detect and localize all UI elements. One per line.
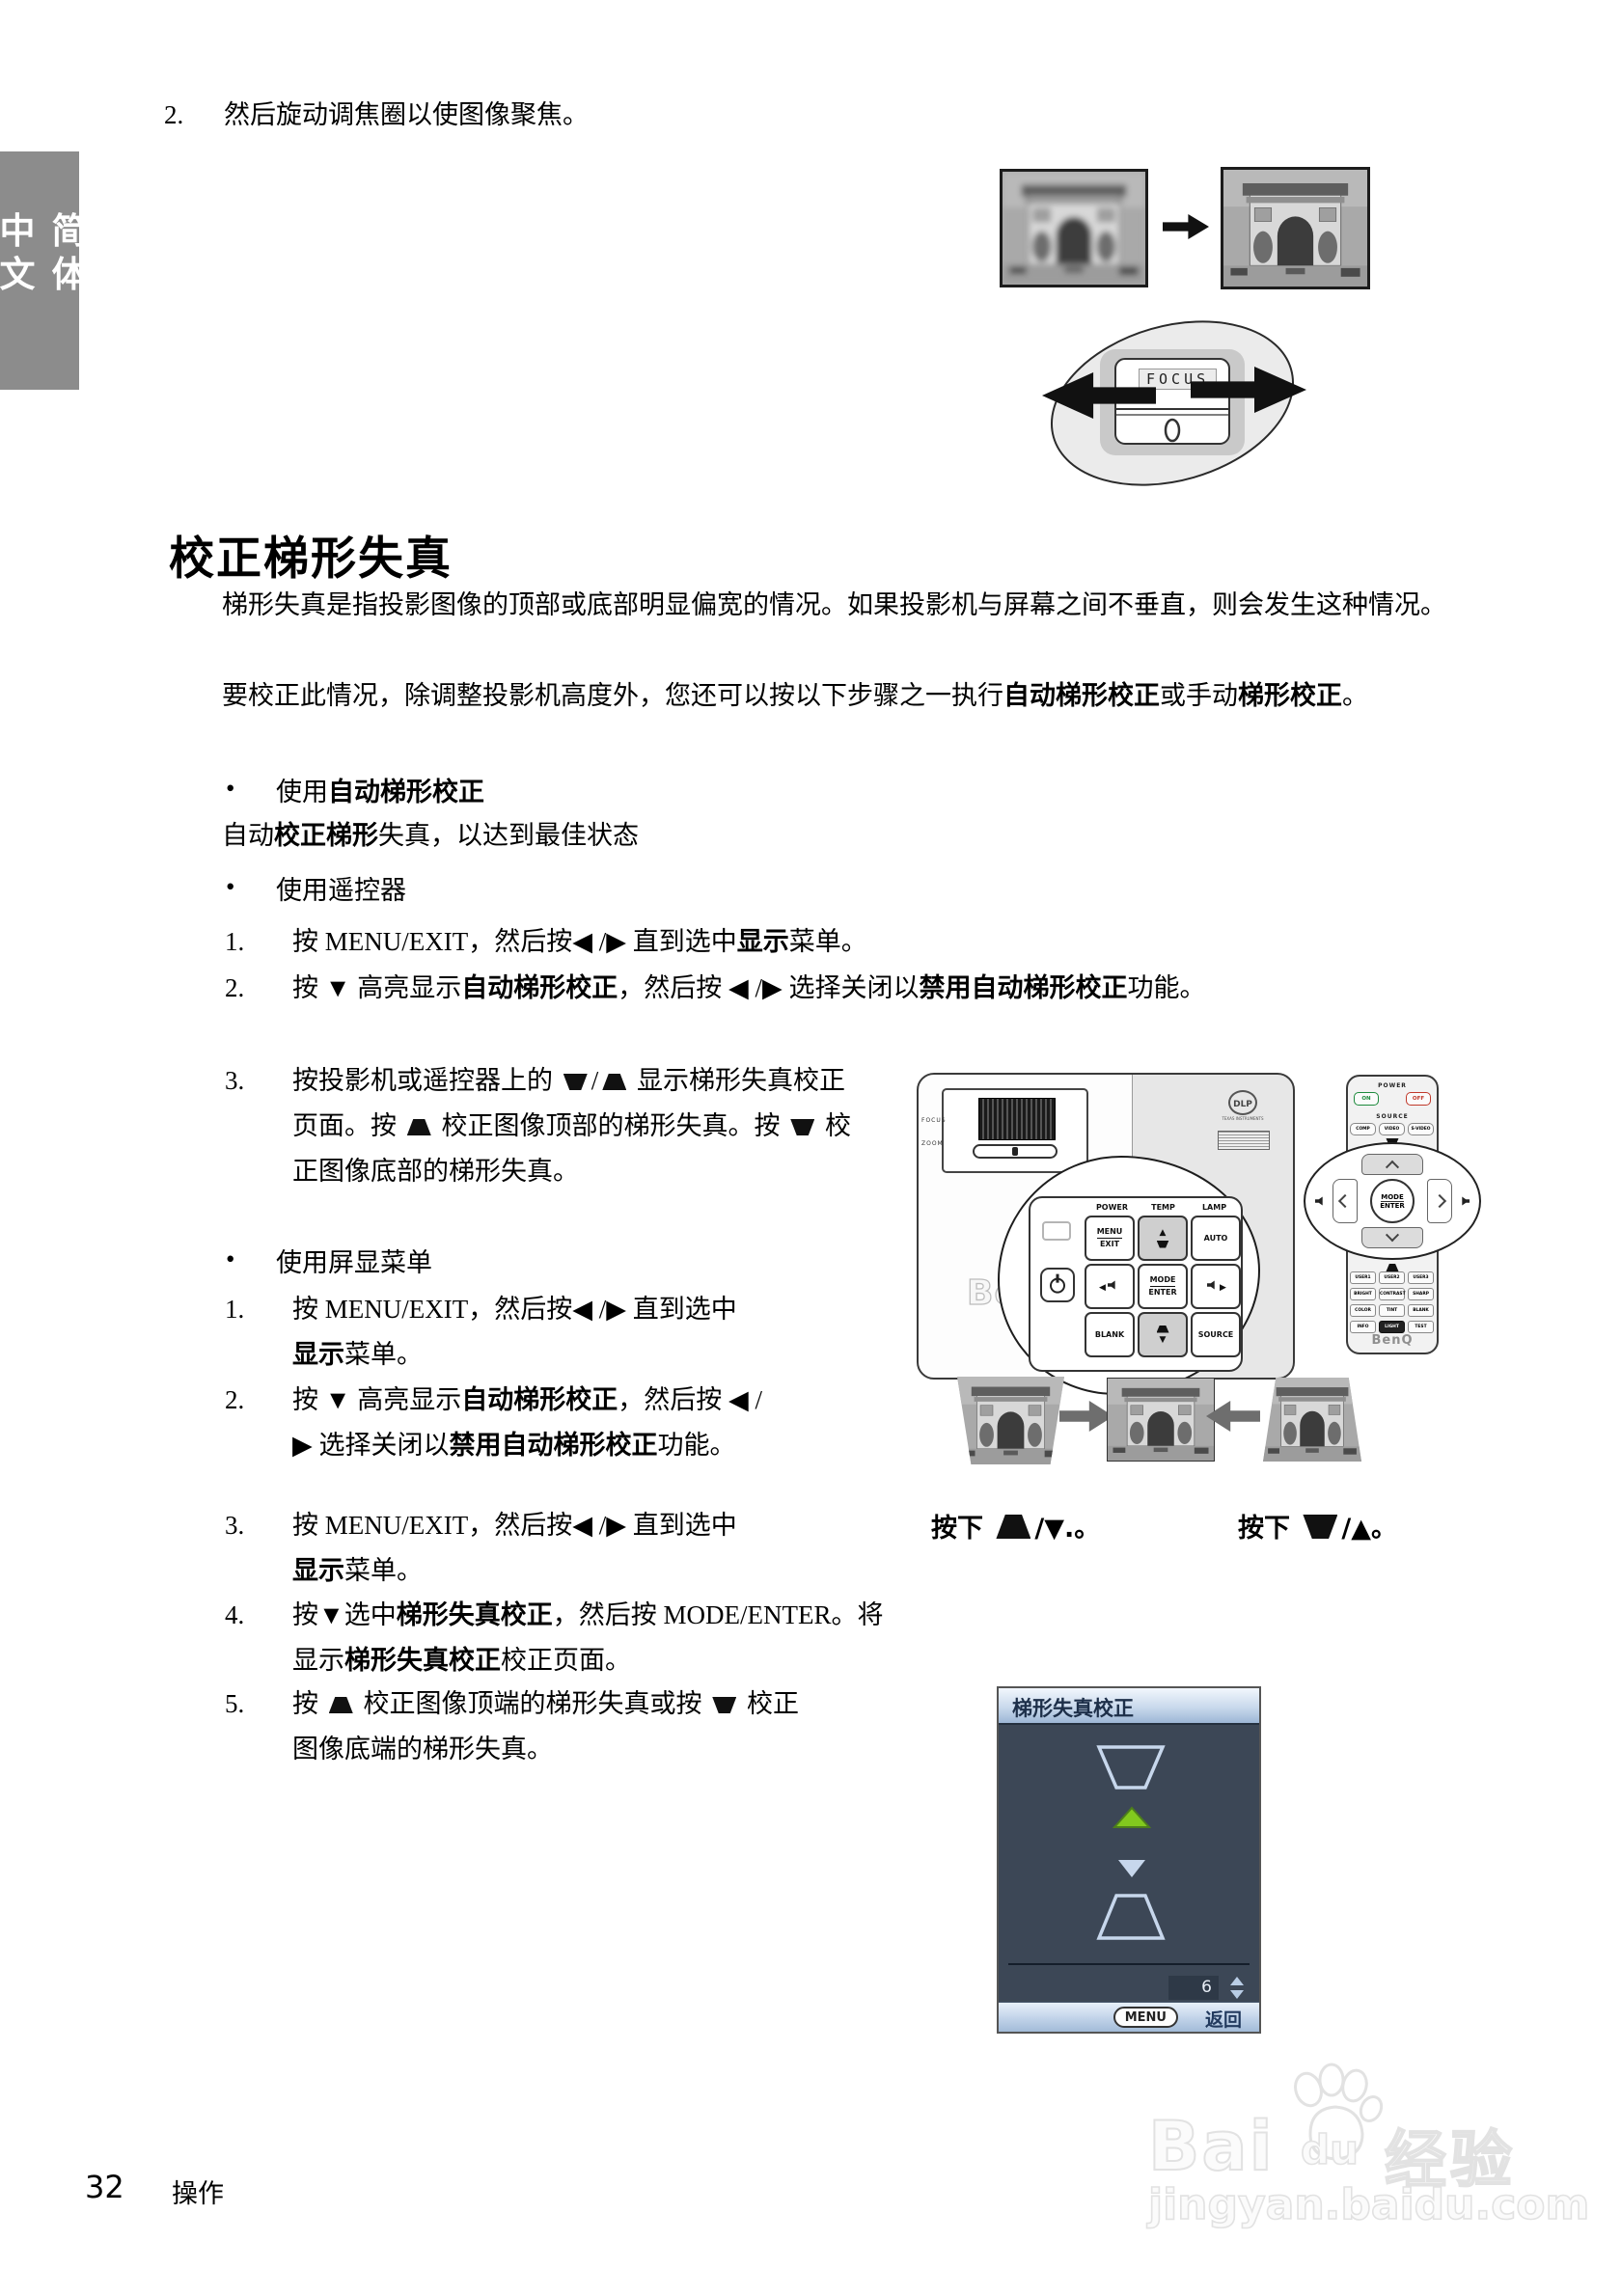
bullet-auto-keystone: 使用自动梯形校正	[276, 770, 484, 815]
text-run: 按 MENU/EXIT，然后按◀ /▶ 直到选中	[292, 1295, 737, 1324]
text-run: 禁用自动梯形校正	[920, 973, 1128, 1003]
focus-ring-figure: FOCUS	[1044, 309, 1305, 502]
remote-light-button: LIGHT	[1379, 1321, 1405, 1333]
remote-sharp-button: SHARP	[1408, 1288, 1434, 1300]
speaker-icon	[1207, 1280, 1218, 1290]
text-run: 校正页面。	[501, 1646, 631, 1675]
triangle-right-icon: ▶	[1220, 1283, 1226, 1293]
watermark-bai-text: Bai	[1148, 2107, 1275, 2186]
arch-illustration	[1223, 170, 1367, 287]
remote-comp-button: COMP	[1350, 1123, 1376, 1135]
menu-exit-key: MENU EXIT	[1085, 1216, 1135, 1261]
osd-separator	[1008, 1963, 1250, 1965]
list-item: 按 MENU/EXIT，然后按◀ /▶ 直到选中显示菜单。	[292, 919, 1498, 965]
arch-illustration	[1263, 1378, 1361, 1462]
text-run: 校正梯形	[274, 821, 378, 851]
list-item: 按 ▼ 高亮显示自动梯形校正，然后按 ◀ /▶ 选择关闭以禁用自动梯形校正功能。	[292, 966, 1498, 1011]
list-item: 按 MENU/EXIT，然后按◀ /▶ 直到选中显示菜单。	[292, 1503, 756, 1594]
list-item: 按 MENU/EXIT，然后按◀ /▶ 直到选中显示菜单。	[292, 1287, 756, 1378]
text-run: 按 MENU/EXIT，然后按◀ /▶ 直到选中	[292, 1511, 737, 1540]
remote-source-label: SOURCE	[1346, 1113, 1439, 1120]
auto-keystone-line: 自动校正梯形失真，以达到最佳状态	[222, 813, 639, 859]
keystone-up-icon	[1157, 1326, 1169, 1333]
watermark-jingyan-text: 经验	[1385, 2111, 1516, 2200]
power-icon	[1050, 1278, 1065, 1294]
dpad-left-key	[1333, 1179, 1358, 1223]
intro-paragraph-1: 梯形失真是指投影图像的顶部或底部明显偏宽的情况。如果投影机与屏幕之间不垂直，则会…	[222, 583, 1467, 628]
text-run: 按下	[1238, 1514, 1299, 1544]
mode-enter-button: MODE ENTER	[1370, 1179, 1415, 1223]
remote-power-label: POWER	[1346, 1082, 1439, 1089]
text-run: 显示	[292, 1340, 344, 1370]
indicator-window	[1042, 1221, 1071, 1241]
text-run: 自动梯形校正	[328, 778, 484, 807]
page-number: 32	[85, 2169, 124, 2205]
power-indicator-label: POWER	[1086, 1203, 1138, 1212]
remote-info-button: INFO	[1350, 1321, 1376, 1333]
text-run: 按 ▼ 高亮显示	[292, 1385, 461, 1414]
keystone-down-icon	[1303, 1515, 1337, 1539]
text-run: 要校正此情况，除调整投影机高度外，您还可以按以下步骤之一执行	[222, 681, 1003, 710]
text-run: 自动	[222, 821, 274, 850]
text-run: 按▼选中	[292, 1600, 397, 1629]
list-number: 1.	[225, 919, 244, 965]
caption-press-up: 按下 /▼.。	[931, 1507, 1100, 1544]
remote-control-illustration: POWER ON OFF SOURCE COMP VIDEO S-VIDEO M…	[1346, 1075, 1439, 1354]
chevron-up-icon	[1386, 1161, 1399, 1174]
text-run: 按下	[931, 1514, 992, 1544]
text-run: 校正图像顶部的梯形失真。按	[435, 1111, 787, 1140]
certification-badge	[1218, 1131, 1270, 1150]
mode-enter-key: MODE ENTER	[1138, 1264, 1188, 1309]
text-run: 显示	[737, 927, 789, 957]
lens-focus-label: FOCUS	[921, 1117, 947, 1124]
baidu-watermark: Bai du 经验 jingyan.baidu.com	[1148, 2091, 1553, 2246]
text-run: 自动梯形校正	[1003, 681, 1160, 711]
blank-key: BLANK	[1085, 1312, 1135, 1357]
arrow-right-icon	[1163, 214, 1209, 239]
list-number: 1.	[225, 1287, 244, 1332]
chevron-down-icon	[1386, 1228, 1399, 1242]
intro-paragraph-2: 要校正此情况，除调整投影机高度外，您还可以按以下步骤之一执行自动梯形校正或手动梯…	[222, 673, 1467, 719]
keystone-down-icon	[790, 1119, 814, 1135]
panel-headers: POWER TEMP LAMP	[1086, 1203, 1241, 1212]
keystone-image-wide-bottom	[1263, 1378, 1361, 1462]
remote-tint-button: TINT	[1379, 1304, 1405, 1317]
auto-key: AUTO	[1191, 1216, 1241, 1261]
text-run: 按	[292, 1689, 325, 1718]
list-number: 2.	[225, 966, 244, 1011]
page-title: 校正梯形失真	[169, 521, 453, 588]
osd-footer-bar: MENU 返回	[999, 2002, 1259, 2032]
keystone-osd-dialog: 梯形失真校正 6 MENU 返回	[997, 1686, 1261, 2034]
text-run: 自动梯形校正	[461, 973, 618, 1003]
temp-indicator-label: TEMP	[1138, 1203, 1189, 1212]
osd-title: 梯形失真校正	[1012, 1693, 1134, 1722]
keystone-down-icon	[563, 1074, 588, 1090]
projector-lens-assembly	[942, 1088, 1088, 1173]
bullet-dot: •	[226, 872, 234, 902]
text-run: 自动梯形校正	[461, 1385, 618, 1415]
remote-brand-logo: BenQ	[1346, 1333, 1439, 1348]
footer-section-label: 操作	[172, 2173, 224, 2210]
left-volume-key: ◀	[1085, 1264, 1135, 1309]
text-run: 或手动	[1160, 681, 1238, 710]
triangle-up-icon: ▲	[1160, 1229, 1167, 1238]
step2-text: 然后旋动调焦圈以使图像聚焦。	[224, 93, 589, 138]
keystone-up-icon	[996, 1515, 1030, 1539]
dpad-right-key	[1427, 1179, 1452, 1223]
keystone-up-key: ▲	[1138, 1216, 1188, 1261]
keystone-up-icon	[329, 1697, 353, 1713]
triangle-down-icon: ▼	[1160, 1336, 1167, 1345]
remote-user2-button: USER2	[1379, 1271, 1405, 1284]
list-item: 按▼选中梯形失真校正，然后按 MODE/ENTER。将显示梯形失真校正校正页面。	[292, 1593, 900, 1683]
dlp-logo-circle: DLP	[1228, 1090, 1257, 1115]
language-tab-label: 简体中文	[0, 211, 92, 331]
text-run: 使用屏显菜单	[276, 1248, 432, 1277]
triangle-left-icon: ◀	[1099, 1283, 1106, 1293]
source-key: SOURCE	[1191, 1312, 1241, 1357]
text-run: ，然后按 ◀ /▶ 选择关闭以	[618, 973, 919, 1002]
remote-blank-button: BLANK	[1408, 1304, 1434, 1317]
text-run: /▲。	[1341, 1514, 1397, 1544]
remote-user1-button: USER1	[1350, 1271, 1376, 1284]
text-run: 按 MENU/EXIT，然后按◀ /▶ 直到选中	[292, 927, 737, 956]
remote-off-button: OFF	[1406, 1092, 1431, 1106]
keystone-decrease-icon	[1116, 1858, 1147, 1879]
remote-color-button: COLOR	[1350, 1304, 1376, 1317]
osd-back-label: 返回	[1205, 2006, 1242, 2032]
text-run: 禁用自动梯形校正	[450, 1431, 658, 1461]
list-item: 按 ▼ 高亮显示自动梯形校正，然后按 ◀ /▶ 选择关闭以禁用自动梯形校正功能。	[292, 1378, 775, 1468]
keystone-image-corrected	[1107, 1378, 1215, 1462]
bullet-use-osd: 使用屏显菜单	[276, 1241, 432, 1286]
text-run: 按 ▼ 高亮显示	[292, 973, 461, 1002]
list-item: 按 校正图像顶端的梯形失真或按 校正图像底端的梯形失真。	[292, 1681, 823, 1772]
spinner-down-icon	[1230, 1990, 1244, 1999]
lens-zoom-label: ZOOM	[921, 1140, 944, 1147]
text-run: 梯形失真校正	[344, 1646, 501, 1676]
list-number: 2.	[225, 1378, 244, 1423]
projector-illustration: FOCUS ZOOM DLP TEXAS INSTRUMENTS BenQ PO…	[917, 1073, 1295, 1380]
text-run: 功能。	[658, 1431, 736, 1460]
watermark-du-text: du	[1301, 2126, 1359, 2173]
osd-title-bar: 梯形失真校正	[999, 1688, 1259, 1725]
zoom-slider	[973, 1144, 1058, 1159]
osd-body: 6	[999, 1727, 1259, 2004]
keystone-down-key: ▼	[1138, 1312, 1188, 1357]
power-button	[1040, 1268, 1075, 1302]
value-spinner	[1230, 1976, 1244, 2000]
lamp-indicator-label: LAMP	[1189, 1203, 1240, 1212]
list-item: 按投影机或遥控器上的 / 显示梯形失真校正页面。按 校正图像顶部的梯形失真。按 …	[292, 1058, 857, 1194]
text-run: 梯形失真校正	[397, 1600, 553, 1630]
dpad-down-key	[1361, 1227, 1423, 1248]
arch-image-sharp	[1221, 167, 1370, 289]
text-run: /▼.。	[1034, 1514, 1100, 1544]
text-run: 菜单。	[344, 1340, 423, 1369]
baidu-paw-icon	[1272, 2059, 1387, 2174]
text-run: 梯形失真是指投影图像的顶部或底部明显偏宽的情况。如果投影机与屏幕之间不垂直，则会…	[222, 590, 1446, 619]
keystone-up-icon	[407, 1119, 431, 1135]
manual-page: { "sidebar": { "label": "简体中文" }, "step2…	[0, 0, 1621, 2296]
dlp-logo: DLP TEXAS INSTRUMENTS	[1216, 1090, 1270, 1121]
keystone-down-icon	[712, 1697, 736, 1713]
keystone-up-icon	[602, 1074, 626, 1090]
speaker-icon	[1315, 1196, 1326, 1206]
dpad-up-key	[1361, 1154, 1423, 1175]
list-number: 3.	[225, 1058, 244, 1104]
focus-ring-knob	[978, 1098, 1056, 1140]
control-panel: POWER TEMP LAMP MENU EXIT ▲ AUTO ◀ MODE	[1029, 1196, 1243, 1372]
spinner-up-icon	[1230, 1977, 1244, 1985]
text-run: 使用	[276, 778, 328, 806]
text-run: 使用遥控器	[276, 876, 406, 905]
speaker-icon	[1108, 1280, 1118, 1290]
text-run: 菜单。	[344, 1556, 423, 1585]
osd-menu-button: MENU	[1113, 2007, 1178, 2028]
keystone-value: 6	[1168, 1976, 1219, 2000]
text-run: 梯形校正	[1238, 681, 1342, 711]
right-volume-key: ▶	[1191, 1264, 1241, 1309]
text-run: 校正图像顶端的梯形失真或按	[357, 1689, 709, 1718]
list-number: 4.	[225, 1593, 244, 1638]
bullet-dot: •	[226, 1244, 234, 1274]
arrow-right-icon	[1059, 1401, 1113, 1432]
list-number: 5.	[225, 1681, 244, 1727]
keypad-grid: MENU EXIT ▲ AUTO ◀ MODE ENTER ▶ BLANK	[1085, 1216, 1241, 1357]
arch-image-blurry	[1000, 169, 1148, 287]
dlp-logo-subtext: TEXAS INSTRUMENTS	[1216, 1116, 1270, 1121]
keystone-outline-top-icon	[1095, 1744, 1167, 1790]
arch-illustration	[1108, 1379, 1214, 1461]
remote-contrast-button: CONTRAST	[1379, 1288, 1405, 1300]
keystone-outline-bottom-icon	[1095, 1893, 1167, 1941]
dpad-magnifier: MODE ENTER	[1304, 1142, 1481, 1260]
keystone-increase-icon	[1113, 1806, 1151, 1831]
keystone-down-icon	[1157, 1241, 1169, 1248]
chevron-right-icon	[1433, 1194, 1446, 1208]
remote-on-button: ON	[1354, 1092, 1379, 1106]
arch-illustration	[1003, 172, 1145, 285]
text-run: 菜单。	[789, 927, 867, 956]
speaker-icon	[1459, 1196, 1470, 1206]
language-tab: 简体中文	[0, 151, 79, 390]
text-run: 按投影机或遥控器上的	[292, 1066, 560, 1095]
bullet-dot: •	[226, 774, 234, 804]
text-run: 显示	[292, 1556, 344, 1586]
bullet-use-remote: 使用遥控器	[276, 868, 406, 914]
remote-test-button: TEST	[1408, 1321, 1434, 1333]
keystone-image-wide-top	[957, 1377, 1064, 1464]
step2-number: 2.	[164, 93, 183, 138]
text-run: 功能。	[1128, 973, 1206, 1002]
remote-svideo-button: S-VIDEO	[1408, 1123, 1434, 1135]
text-run: 失真，以达到最佳状态	[378, 821, 639, 850]
text-run: 。	[1342, 681, 1368, 710]
remote-video-button: VIDEO	[1379, 1123, 1405, 1135]
text-run: /	[591, 1066, 599, 1095]
caption-press-down: 按下 /▲。	[1238, 1507, 1397, 1544]
remote-bright-button: BRIGHT	[1350, 1288, 1376, 1300]
remote-user3-button: USER3	[1408, 1271, 1434, 1284]
arch-illustration	[957, 1377, 1064, 1464]
chevron-left-icon	[1338, 1194, 1352, 1208]
watermark-url: jingyan.baidu.com	[1148, 2180, 1589, 2229]
list-number: 3.	[225, 1503, 244, 1548]
